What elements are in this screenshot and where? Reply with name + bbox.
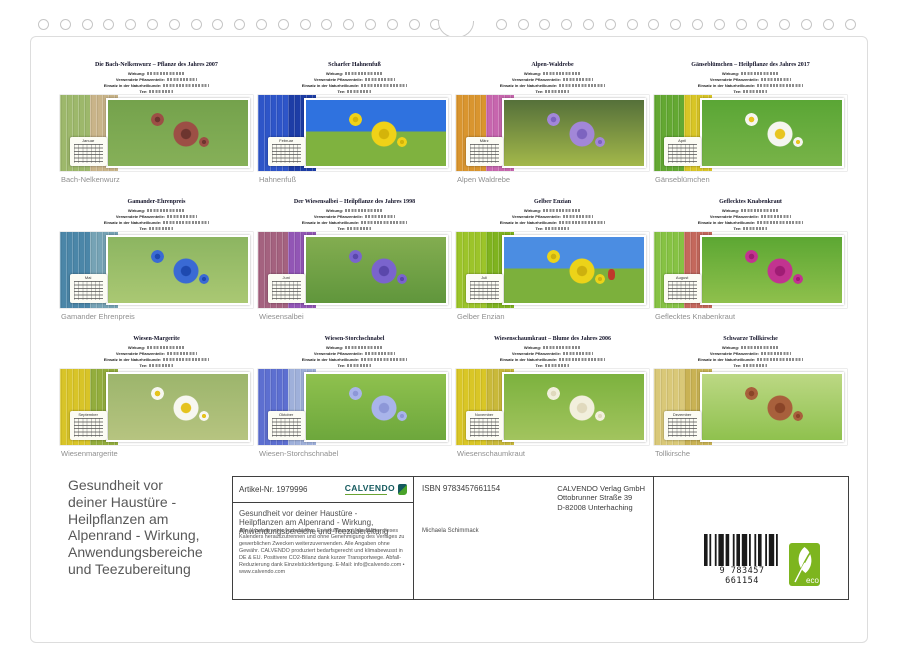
binding-hole [583,19,594,30]
flower-graphic [173,258,199,284]
binding-hole [234,19,245,30]
thumb-photo: Juli [456,232,649,308]
mini-calendar-grid [272,418,301,437]
eco-label: eco [806,576,819,585]
binding-hole [409,19,420,30]
eco-badge: eco [789,543,820,586]
flower-photo [106,235,250,305]
mini-calendar-grid [272,144,301,163]
info-box-right-cell: 9 783457 661154 eco [654,477,848,599]
thumb-detail-lines: Wirkung:Verwendete Pflanzenteile:Einsatz… [456,208,649,232]
thumb-detail-line: Tee: [60,89,253,95]
thumb-detail-lines: Wirkung:Verwendete Pflanzenteile:Einsatz… [654,208,847,232]
mini-calendar-grid [668,281,697,300]
binding-hole [561,19,572,30]
binding-hole [60,19,71,30]
thumb-detail-line: Tee: [456,226,649,232]
mini-calendar-month: Februar [268,139,305,144]
mini-calendar-grid [74,281,103,300]
thumb-detail-line: Tee: [654,89,847,95]
calendar-thumb: Geflecktes Knabenkraut Wirkung:Verwendet… [654,199,847,336]
binding-hole [627,19,638,30]
calendar-thumb: Die Bach-Nelkenwurz – Pflanze des Jahres… [60,62,253,199]
thumb-detail-lines: Wirkung:Verwendete Pflanzenteile:Einsatz… [60,71,253,95]
binding-hole [169,19,180,30]
binding-hole [518,19,529,30]
thumb-detail-lines: Wirkung:Verwendete Pflanzenteile:Einsatz… [258,208,451,232]
binding-hole [82,19,93,30]
mini-calendar-month: September [70,413,107,418]
mini-calendar-grid [74,144,103,163]
mini-calendar-month: November [466,413,503,418]
thumb-photo: Juni [258,232,451,308]
mini-calendar-month: April [664,139,701,144]
thumb-title: Geflecktes Knabenkraut [660,199,841,207]
mini-calendar-grid [470,418,499,437]
flower-photo [700,372,844,442]
thumb-title: Wiesen-Margerite [66,336,247,344]
thumb-detail-lines: Wirkung:Verwendete Pflanzenteile:Einsatz… [456,345,649,369]
thumb-detail-lines: Wirkung:Verwendete Pflanzenteile:Einsatz… [258,71,451,95]
flower-graphic [569,395,595,421]
binding-hole [38,19,49,30]
calendar-thumb: Der Wiesensalbei – Heilpflanze des Jahre… [258,199,451,336]
thumb-detail-line: Tee: [654,226,847,232]
thumb-detail-line: Tee: [456,89,649,95]
flower-photo [502,98,646,168]
thumb-detail-lines: Wirkung:Verwendete Pflanzenteile:Einsatz… [60,208,253,232]
mini-calendar: Mai [70,274,107,303]
artikel-row: Artikel-Nr. 1979996 CALVENDO [233,477,413,503]
binding-hole [300,19,311,30]
binding-hole [714,19,725,30]
flower-photo [106,372,250,442]
calvendo-leaf-icon [398,484,407,495]
mini-calendar-grid [668,144,697,163]
binding-hole [539,19,550,30]
mini-calendar: November [466,411,503,440]
flower-graphic [371,258,397,284]
thumb-photo: April [654,95,847,171]
binding-hole [256,19,267,30]
mini-calendar-month: Oktober [268,413,305,418]
binding-hole [845,19,856,30]
thumb-caption: Gamander Ehrenpreis [61,312,135,321]
calvendo-wordmark: CALVENDO [345,484,395,493]
thumb-photo: Oktober [258,369,451,445]
thumb-caption: Wiesenmargerite [61,449,118,458]
calendar-thumb: Alpen-Waldrebe Wirkung:Verwendete Pflanz… [456,62,649,199]
calendar-thumb: Gänseblümchen – Heilpflanze des Jahres 2… [654,62,847,199]
thumb-caption: Wiesenschaumkraut [457,449,525,458]
flower-photo [106,98,250,168]
binding-hole [387,19,398,30]
mini-calendar: August [664,274,701,303]
mini-calendar-month: August [664,276,701,281]
binding-hole [605,19,616,30]
thumb-detail-lines: Wirkung:Verwendete Pflanzenteile:Einsatz… [654,345,847,369]
thumb-detail-lines: Wirkung:Verwendete Pflanzenteile:Einsatz… [258,345,451,369]
thumb-title: Der Wiesensalbei – Heilpflanze des Jahre… [264,199,445,207]
flower-graphic [173,395,199,421]
mini-calendar: Juli [466,274,503,303]
mini-calendar-grid [272,281,301,300]
thumb-detail-lines: Wirkung:Verwendete Pflanzenteile:Einsatz… [60,345,253,369]
binding-hole [212,19,223,30]
thumb-caption: Wiesen-Storchschnabel [259,449,338,458]
binding-hole [103,19,114,30]
flower-graphic [371,395,397,421]
binding-hole [736,19,747,30]
author-name: Michaela Schimmack [422,528,645,534]
binding-hole [692,19,703,30]
flower-graphic [371,121,397,147]
binding-hole [648,19,659,30]
thumb-photo: Mai [60,232,253,308]
binding-hole [365,19,376,30]
calendar-thumb: Gelber Enzian Wirkung:Verwendete Pflanze… [456,199,649,336]
thumb-caption: Geflecktes Knabenkraut [655,312,735,321]
barcode: 9 783457 661154 [704,534,780,586]
flower-photo [304,235,448,305]
isbn: ISBN 9783457661154 [422,484,500,512]
thumb-detail-line: Tee: [60,226,253,232]
calendar-thumb: Wiesen-Margerite Wirkung:Verwendete Pfla… [60,336,253,473]
mini-calendar: Januar [70,137,107,166]
flower-photo [700,98,844,168]
flower-graphic [569,258,595,284]
thumb-detail-lines: Wirkung:Verwendete Pflanzenteile:Einsatz… [456,71,649,95]
calendar-thumb: Gamander-Ehrenpreis Wirkung:Verwendete P… [60,199,253,336]
flower-photo [502,372,646,442]
binding-hole [343,19,354,30]
thumb-detail-line: Tee: [258,363,451,369]
binding-hole [321,19,332,30]
thumb-detail-lines: Wirkung:Verwendete Pflanzenteile:Einsatz… [654,71,847,95]
thumb-photo: März [456,95,649,171]
thumb-title: Scharfer Hahnenfuß [264,62,445,70]
mini-calendar-month: März [466,139,503,144]
flower-photo [700,235,844,305]
thumb-caption: Alpen Waldrebe [457,175,510,184]
thumb-detail-line: Tee: [60,363,253,369]
binding-hole [125,19,136,30]
thumb-caption: Bach-Nelkenwurz [61,175,120,184]
mini-calendar: März [466,137,503,166]
calvendo-logo: CALVENDO [345,484,407,496]
thumb-caption: Gänseblümchen [655,175,710,184]
barcode-digits: 9 783457 661154 [704,566,780,586]
info-box: Artikel-Nr. 1979996 CALVENDO Gesundheit … [232,476,849,600]
binding-hole [779,19,790,30]
thumb-caption: Tollkirsche [655,449,690,458]
mini-calendar-month: Mai [70,276,107,281]
info-box-left-cell: Artikel-Nr. 1979996 CALVENDO Gesundheit … [233,477,414,599]
mini-calendar-month: Januar [70,139,107,144]
mini-calendar-grid [668,418,697,437]
thumb-title: Alpen-Waldrebe [462,62,643,70]
calendar-thumb: Wiesen-Storchschnabel Wirkung:Verwendete… [258,336,451,473]
flower-photo [304,98,448,168]
box-product-title: Gesundheit vor deiner Haustüre - Heilpfl… [239,509,409,537]
calvendo-tagline [345,494,388,496]
binding-hole [801,19,812,30]
flower-graphic [569,121,595,147]
flower-graphic [767,395,793,421]
mini-calendar-month: Juni [268,276,305,281]
thumb-photo: August [654,232,847,308]
mini-calendar-grid [470,144,499,163]
mini-calendar: September [70,411,107,440]
thumb-detail-line: Tee: [456,363,649,369]
flower-graphic [767,258,793,284]
product-title: Gesundheit vor deiner Haustüre - Heilpfl… [68,477,238,578]
binding-hole [670,19,681,30]
photo-accent [608,269,615,280]
mini-calendar-grid [74,418,103,437]
thumb-photo: September [60,369,253,445]
mini-calendar: Oktober [268,411,305,440]
thumb-photo: Januar [60,95,253,171]
mini-calendar-grid [470,281,499,300]
info-box-middle-cell: ISBN 9783457661154 CALVENDO Verlag GmbH … [414,477,654,599]
mini-calendar: Dezember [664,411,701,440]
mini-calendar-month: Dezember [664,413,701,418]
thumb-detail-line: Tee: [258,89,451,95]
thumb-title: Gelber Enzian [462,199,643,207]
calendar-thumb: Scharfer Hahnenfuß Wirkung:Verwendete Pf… [258,62,451,199]
calendar-grid: Die Bach-Nelkenwurz – Pflanze des Jahres… [60,62,848,473]
binding-hole [147,19,158,30]
binding-hole [278,19,289,30]
mini-calendar: Februar [268,137,305,166]
binding-hole [757,19,768,30]
flower-graphic [173,121,199,147]
flower-photo [502,235,646,305]
binding-hole [191,19,202,30]
thumb-detail-line: Tee: [654,363,847,369]
thumb-title: Die Bach-Nelkenwurz – Pflanze des Jahres… [66,62,247,70]
thumb-caption: Hahnenfuß [259,175,296,184]
artikel-nr: Artikel-Nr. 1979996 [239,485,307,494]
mini-calendar: Juni [268,274,305,303]
binding-hole [823,19,834,30]
publisher-address: CALVENDO Verlag GmbH Ottobrunner Straße … [557,484,645,512]
thumb-photo: Dezember [654,369,847,445]
calendar-thumb: Wiesenschaumkraut – Blume des Jahres 200… [456,336,649,473]
thumb-photo: November [456,369,649,445]
flower-graphic [767,121,793,147]
mini-calendar: April [664,137,701,166]
calendar-thumb: Schwarze Tollkirsche Wirkung:Verwendete … [654,336,847,473]
binding-hole [496,19,507,30]
thumb-title: Gamander-Ehrenpreis [66,199,247,207]
thumb-caption: Gelber Enzian [457,312,505,321]
thumb-title: Schwarze Tollkirsche [660,336,841,344]
flower-photo [304,372,448,442]
thumb-caption: Wiesensalbei [259,312,304,321]
thumb-title: Wiesenschaumkraut – Blume des Jahres 200… [462,336,643,344]
mini-calendar-month: Juli [466,276,503,281]
thumb-title: Gänseblümchen – Heilpflanze des Jahres 2… [660,62,841,70]
thumb-detail-line: Tee: [258,226,451,232]
thumb-title: Wiesen-Storchschnabel [264,336,445,344]
thumb-photo: Februar [258,95,451,171]
